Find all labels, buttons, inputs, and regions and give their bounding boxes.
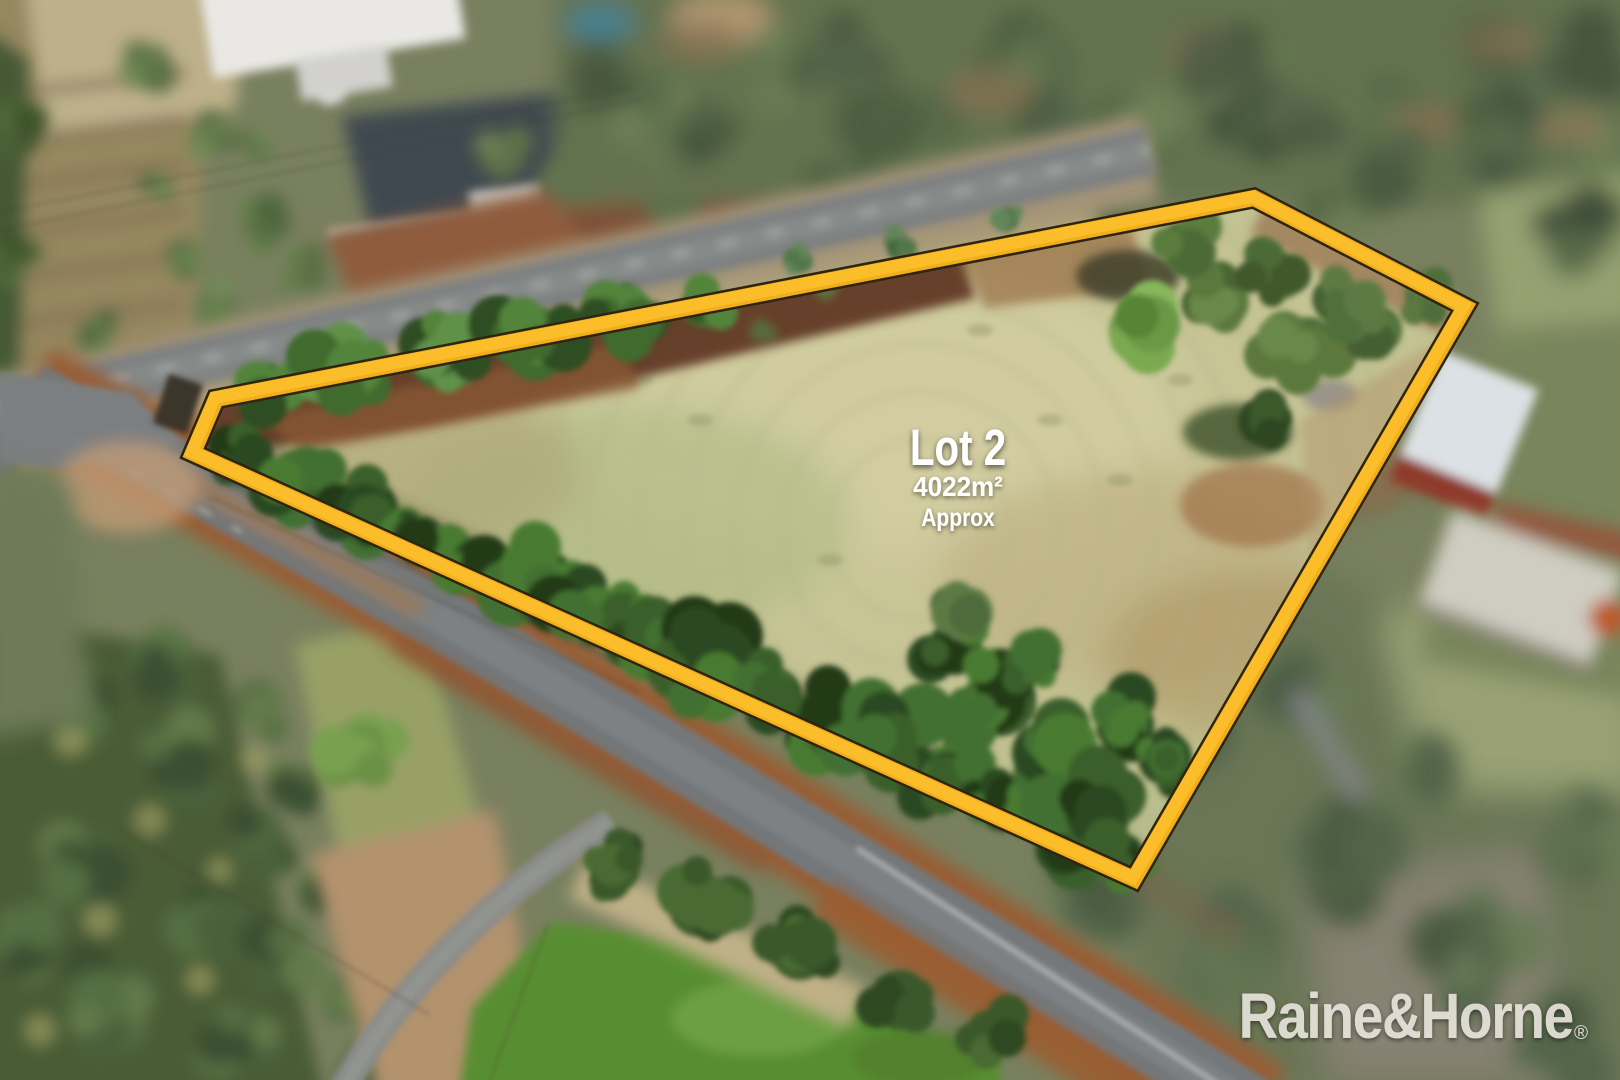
svg-text:®: ® [1574,1023,1588,1044]
svg-text:Raine&Horne: Raine&Horne [1239,980,1574,1052]
svg-text:Approx: Approx [921,503,995,531]
svg-text:Lot 2: Lot 2 [910,418,1006,476]
svg-text:4022m²: 4022m² [913,471,1003,502]
